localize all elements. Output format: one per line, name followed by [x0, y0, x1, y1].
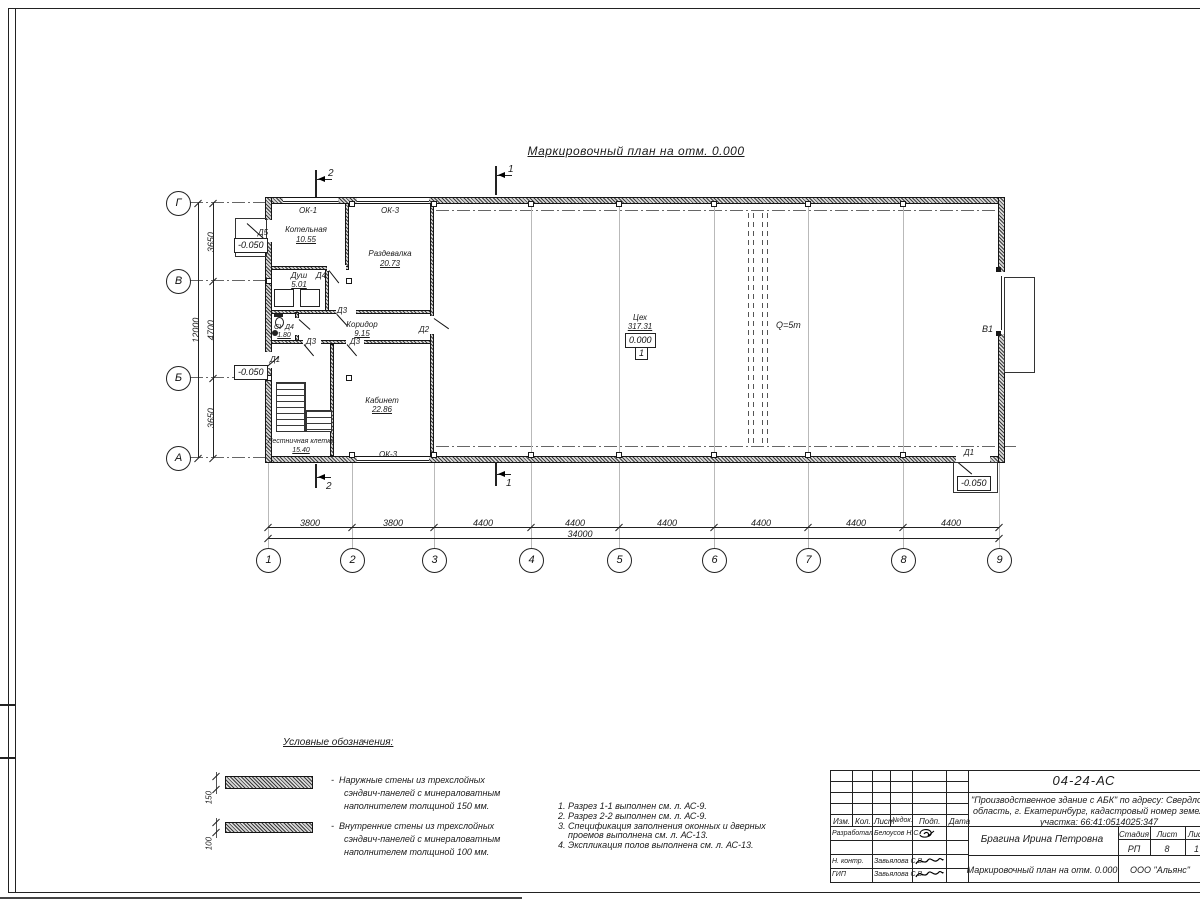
crane-line	[753, 213, 754, 445]
titleblock-line	[830, 840, 968, 841]
grid-bubble-6: 6	[702, 548, 727, 573]
room-label: Лестничная клетка	[268, 438, 335, 446]
column-marker	[805, 452, 811, 458]
room-area: 5.01	[291, 280, 307, 289]
column-marker	[349, 452, 355, 458]
gate-label: В1	[982, 324, 993, 334]
room-area: 1.80	[277, 332, 291, 340]
signature-gip	[914, 868, 944, 880]
window-ok1	[283, 198, 338, 203]
doc-number: 04-24-АС	[1053, 774, 1116, 789]
room-area: 20.73	[380, 259, 400, 268]
project-line-2: область, г. Екатеринбург, кадастровый но…	[973, 806, 1200, 816]
door-label-d3: Д3	[337, 306, 347, 315]
section-arrowhead	[498, 172, 505, 178]
door-label-d3: Д3	[306, 337, 316, 346]
window-label-ok1: ОК-1	[299, 206, 317, 215]
column-marker	[346, 375, 352, 381]
column-marker	[528, 201, 534, 207]
shower-stall	[300, 289, 320, 307]
col-podp: Подп.	[919, 817, 940, 826]
room-area: 22.86	[372, 405, 392, 414]
titleblock-line	[968, 855, 1200, 856]
row-role-nkontr: Н. контр.	[832, 858, 864, 866]
column-marker	[616, 201, 622, 207]
dim-value: 4400	[846, 518, 866, 528]
door-label-d3: Д3	[350, 337, 360, 346]
floor-type-mark: 1	[635, 347, 648, 360]
titleblock-line	[830, 803, 968, 804]
grid-bubble-2: 2	[340, 548, 365, 573]
stage-col-listov: Лис	[1188, 830, 1200, 839]
grid-line	[619, 204, 620, 548]
legend-dim-150: 150	[204, 781, 213, 815]
titleblock-line	[830, 770, 831, 882]
grid-line	[352, 462, 353, 548]
dim-value: 4400	[657, 518, 677, 528]
crane-rail-top	[436, 210, 996, 211]
dim-value: 4400	[751, 518, 771, 528]
grid-bubble-1: 1	[256, 548, 281, 573]
door-label-d5: Д5	[258, 228, 268, 237]
project-line-3: участка: 66:41:0514025:347	[1040, 817, 1158, 827]
section-arrowhead	[318, 176, 325, 182]
door-label-d1: Д1	[270, 355, 280, 364]
plan-title: Маркировочный план на отм. 0.000	[527, 145, 744, 159]
gate-jamb	[996, 267, 1001, 272]
axis-line-g	[190, 202, 266, 203]
dim-value: 3800	[300, 518, 320, 528]
legend-wall-sample-150	[225, 776, 313, 789]
column-marker	[431, 201, 437, 207]
shower-stall	[274, 289, 294, 307]
sheet-name: Маркировочный план на отм. 0.000	[967, 865, 1118, 875]
author-name: Брагина Ирина Петровна	[981, 834, 1103, 846]
level-mark-minus: -0.050	[957, 476, 991, 491]
section-label: 2	[326, 481, 332, 493]
section-mark-2-bottom	[315, 464, 317, 488]
legend-text: сэндвич-панелей с минераловатным	[344, 788, 500, 798]
titleblock-line	[830, 781, 968, 782]
titleblock-line	[872, 770, 873, 882]
dim-total: 12000	[191, 313, 201, 347]
crane-capacity-label: Q=5т	[776, 320, 801, 330]
stair-flight	[306, 410, 332, 432]
crane-line	[762, 213, 763, 445]
room-area: 15.40	[292, 447, 310, 455]
titleblock-line	[830, 882, 1200, 883]
legend-text: наполнителем толщиной 100 мм.	[344, 847, 489, 857]
row-role-gip: ГИП	[832, 871, 846, 879]
room-area: 10.55	[296, 235, 316, 244]
titleblock-line	[1185, 826, 1186, 855]
legend-text: сэндвич-панелей с минераловатным	[344, 834, 500, 844]
column-marker	[349, 201, 355, 207]
row-role-razrabotal: Разработал	[832, 830, 873, 838]
crane-line	[748, 213, 749, 445]
crane-rail-bottom	[436, 446, 1018, 447]
titleblock-line	[830, 792, 1200, 793]
grid-line	[434, 462, 435, 548]
stage-col-stadia: Стадия	[1119, 830, 1149, 839]
grid-bubble-5: 5	[607, 548, 632, 573]
grid-line	[808, 204, 809, 548]
section-arrowhead	[318, 474, 325, 480]
gate-panel-v1	[1001, 276, 1002, 330]
sheet-number: 8	[1164, 844, 1169, 854]
grid-bubble-9: 9	[987, 548, 1012, 573]
titleblock-line	[830, 854, 968, 855]
toilet-tank	[274, 314, 283, 317]
door-label-d4: Д4	[316, 271, 326, 280]
sheets-total: 1	[1194, 844, 1199, 854]
door-label-d1: Д1	[964, 448, 974, 457]
axis-line-a	[190, 457, 266, 458]
dim-value: 3650	[206, 401, 216, 435]
room-label: Цех	[633, 313, 647, 322]
grid-bubble-4: 4	[519, 548, 544, 573]
col-data: Дата	[949, 817, 970, 826]
stair-flight	[276, 382, 305, 432]
dim-total: 34000	[567, 529, 592, 539]
titleblock-line	[1150, 826, 1151, 855]
section-mark-1-top	[495, 166, 497, 195]
column-marker	[616, 452, 622, 458]
grid-line	[714, 204, 715, 548]
stage-value: РП	[1128, 844, 1141, 854]
room-label: Раздевалка	[368, 249, 411, 258]
level-mark-minus: -0.050	[234, 238, 268, 253]
wall-interior	[345, 203, 349, 269]
signature-nkontr	[914, 855, 944, 867]
grid-bubble-8: 8	[891, 548, 916, 573]
level-mark-zero: 0.000	[625, 333, 656, 348]
dim-value: 4400	[941, 518, 961, 528]
room-label: Душ	[291, 271, 307, 280]
grid-bubble-7: 7	[796, 548, 821, 573]
dim-value: 3650	[206, 225, 216, 259]
frame-left-inner	[15, 8, 16, 892]
titleblock-line	[830, 770, 1200, 771]
company-name: ООО "Альянс"	[1130, 865, 1190, 875]
grid-bubble-a: А	[166, 446, 191, 471]
level-mark-minus: -0.050	[234, 365, 268, 380]
grid-bubble-b: Б	[166, 366, 191, 391]
frame-fold-mark	[0, 757, 16, 759]
dim-value: 4700	[206, 313, 216, 347]
frame-bottom	[8, 892, 1200, 893]
door-leaf-su	[299, 319, 311, 330]
room-label: Котельная	[285, 225, 327, 234]
crane-line	[767, 213, 768, 445]
room-label: Коридор	[346, 320, 377, 329]
note-3b: проемов выполнена см. л. АС-13.	[558, 830, 708, 840]
ramp-right	[1004, 277, 1035, 373]
project-line-1: "Производственное здание с АБК" по адрес…	[971, 795, 1200, 805]
dim-value: 4400	[473, 518, 493, 528]
legend-dim-100: 100	[204, 827, 213, 861]
room-label: Кабинет	[365, 396, 399, 405]
section-mark-2-top	[315, 170, 317, 197]
axis-line-v	[190, 280, 266, 281]
grid-line	[903, 204, 904, 548]
dim-line-total	[268, 538, 999, 539]
stage-col-list: Лист	[1157, 830, 1178, 839]
note-4: 4. Экспликация полов выполнена см. л. АС…	[558, 840, 754, 850]
titleblock-line	[830, 814, 968, 815]
room-area: 317.31	[628, 322, 652, 331]
section-label: 1	[508, 164, 514, 176]
column-marker	[711, 201, 717, 207]
column-marker	[346, 278, 352, 284]
frame-top	[8, 8, 1200, 9]
frame-fold-mark	[0, 704, 16, 706]
note-2: 2. Разрез 2-2 выполнен см. л. АС-9.	[558, 811, 707, 821]
legend-text: - Наружные стены из трехслойных	[331, 775, 485, 785]
col-kol: Кол.	[855, 817, 871, 826]
window-label-ok3: ОК-3	[381, 206, 399, 215]
titleblock-line	[946, 770, 947, 882]
door-leaf-d4	[329, 270, 340, 283]
legend-text: наполнителем толщиной 150 мм.	[344, 801, 489, 811]
grid-bubble-g: Г	[166, 191, 191, 216]
window-ok3-top	[357, 198, 429, 203]
col-izm: Изм.	[833, 817, 850, 826]
dim-value: 4400	[565, 518, 585, 528]
column-marker	[266, 278, 272, 284]
paper-edge	[0, 897, 522, 899]
column-marker	[711, 452, 717, 458]
dim-value: 3800	[383, 518, 403, 528]
column-marker	[431, 452, 437, 458]
legend-title: Условные обозначения:	[283, 737, 393, 749]
col-ndok: №док.	[892, 817, 913, 825]
column-marker	[528, 452, 534, 458]
section-label: 1	[506, 478, 512, 490]
stair-divider	[305, 382, 306, 432]
window-label-ok3: ОК-3	[379, 450, 397, 459]
grid-line	[531, 204, 532, 548]
section-label: 2	[328, 168, 334, 180]
gate-jamb	[996, 331, 1001, 336]
column-marker	[900, 201, 906, 207]
column-marker	[805, 201, 811, 207]
drawing-sheet: Маркировочный план на отм. 0.000	[0, 0, 1200, 900]
grid-bubble-v: В	[166, 269, 191, 294]
dim-line	[268, 527, 999, 528]
signature-razrabotal	[914, 827, 944, 840]
column-marker	[900, 452, 906, 458]
frame-left-outer	[8, 8, 9, 892]
note-1: 1. Разрез 1-1 выполнен см. л. АС-9.	[558, 801, 707, 811]
titleblock-line	[852, 770, 853, 826]
section-arrowhead	[498, 471, 505, 477]
room-label: СУ Д4	[274, 324, 294, 332]
titleblock-line	[830, 868, 968, 869]
grid-bubble-3: 3	[422, 548, 447, 573]
legend-wall-sample-100	[225, 822, 313, 833]
legend-text: - Внутренние стены из трехслойных	[331, 821, 494, 831]
door-leaf-d2	[434, 318, 449, 329]
door-label-d2: Д2	[419, 325, 429, 334]
